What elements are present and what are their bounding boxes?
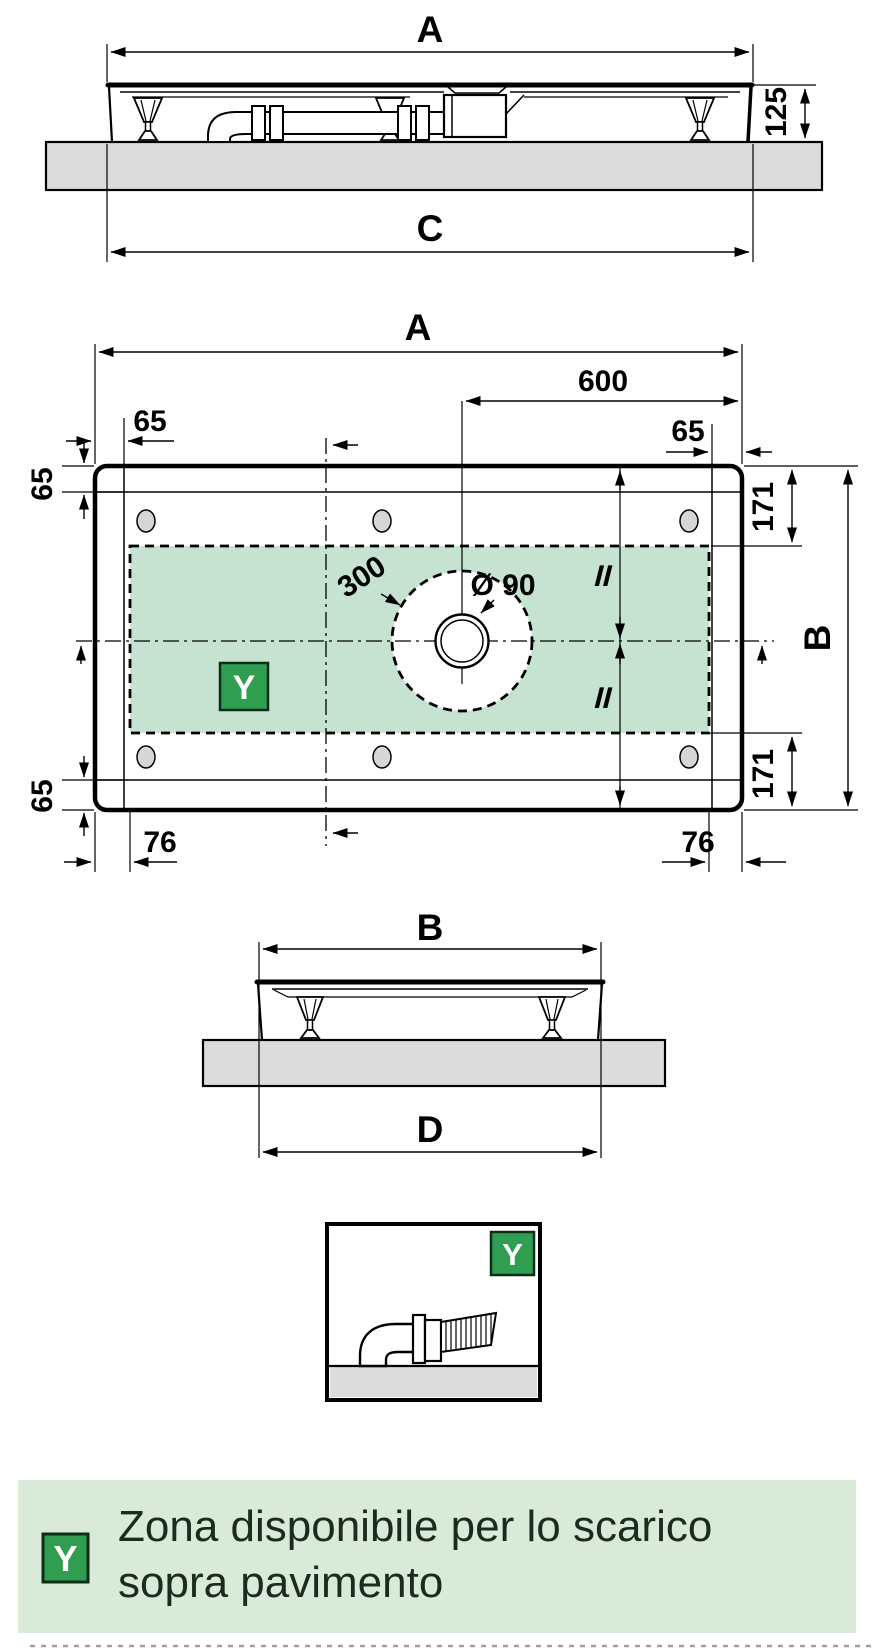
dimension-65-left-top: 65 [26,441,122,519]
rim-left-bottom-label: 65 [26,779,59,812]
drain-piping-icon [208,95,524,142]
edge-top-left-label: 65 [133,405,166,438]
floor-slab [203,1040,665,1086]
legend-badge: Y [43,1534,88,1582]
side-width-label: B [417,907,444,948]
mounting-hole-icon [137,510,155,532]
dimension-b-plan: B [797,470,848,806]
legend: Y Zona disponibile per lo scarico sopra … [18,1480,874,1646]
detail-box: Y [327,1224,540,1400]
dimension-65-top-left: 65 [66,405,174,468]
mounting-hole-icon [373,746,391,768]
dimension-d: D [263,1109,597,1152]
plan-view: II II Y 300 Ø 90 A 60 [26,307,858,872]
plan-width-label: A [405,307,432,348]
drain-diameter-label: Ø 90 [470,569,535,602]
drain-icon [436,401,489,684]
side-base-label: D [417,1109,444,1150]
legend-text-line2: sopra pavimento [118,1558,443,1607]
mounting-hole-icon [680,746,698,768]
floor-band [330,1366,537,1397]
detail-badge-label: Y [502,1237,523,1272]
dimension-76-left: 76 [64,812,177,872]
edge-top-right-label: 65 [671,415,704,448]
zone-right-label: 76 [681,826,714,859]
front-base-label: C [417,208,444,249]
mounting-hole-icon [137,746,155,768]
technical-drawing-page: A [0,0,874,1650]
dimension-a-front: A [107,9,753,82]
dimension-65-left-bottom: 65 [26,756,122,836]
drain-trap-icon [444,95,506,137]
shower-tray-installation-diagram: A [0,0,874,1650]
drain-offset-label: 600 [578,365,628,398]
mounting-hole-icon [680,510,698,532]
legend-badge-label: Y [53,1538,77,1579]
plan-depth-label: B [797,625,838,652]
front-width-label: A [417,9,444,50]
zone-bottom-label: 171 [747,749,780,799]
dimension-171-top: 171 [711,466,858,546]
mounting-hole-icon [373,510,391,532]
dimension-65-top-right: 65 [666,415,772,468]
dimension-a-plan: A [95,307,742,464]
front-height-label: 125 [760,87,793,137]
zone-badge: Y [220,663,268,710]
foot-icon [134,98,162,140]
detail-badge: Y [491,1232,534,1275]
dimension-171-bottom: 171 [711,733,858,810]
zone-badge-label: Y [233,669,256,707]
side-elevation-view: B D [203,907,665,1158]
legend-text-line1: Zona disponibile per lo scarico [118,1502,712,1551]
foot-icon [539,997,565,1038]
dimension-600: 600 [466,365,738,401]
foot-icon [686,98,714,140]
zone-left-label: 76 [143,826,176,859]
front-elevation-view: A [46,9,822,262]
adjustable-feet-side [297,997,565,1038]
foot-icon [297,997,323,1038]
dimension-76-right: 76 [662,812,786,872]
dimension-125: 125 [754,85,816,138]
floor-slab [46,142,822,190]
zone-top-label: 171 [747,482,780,532]
rim-left-top-label: 65 [26,467,59,500]
drain-cap-icon [448,87,506,93]
